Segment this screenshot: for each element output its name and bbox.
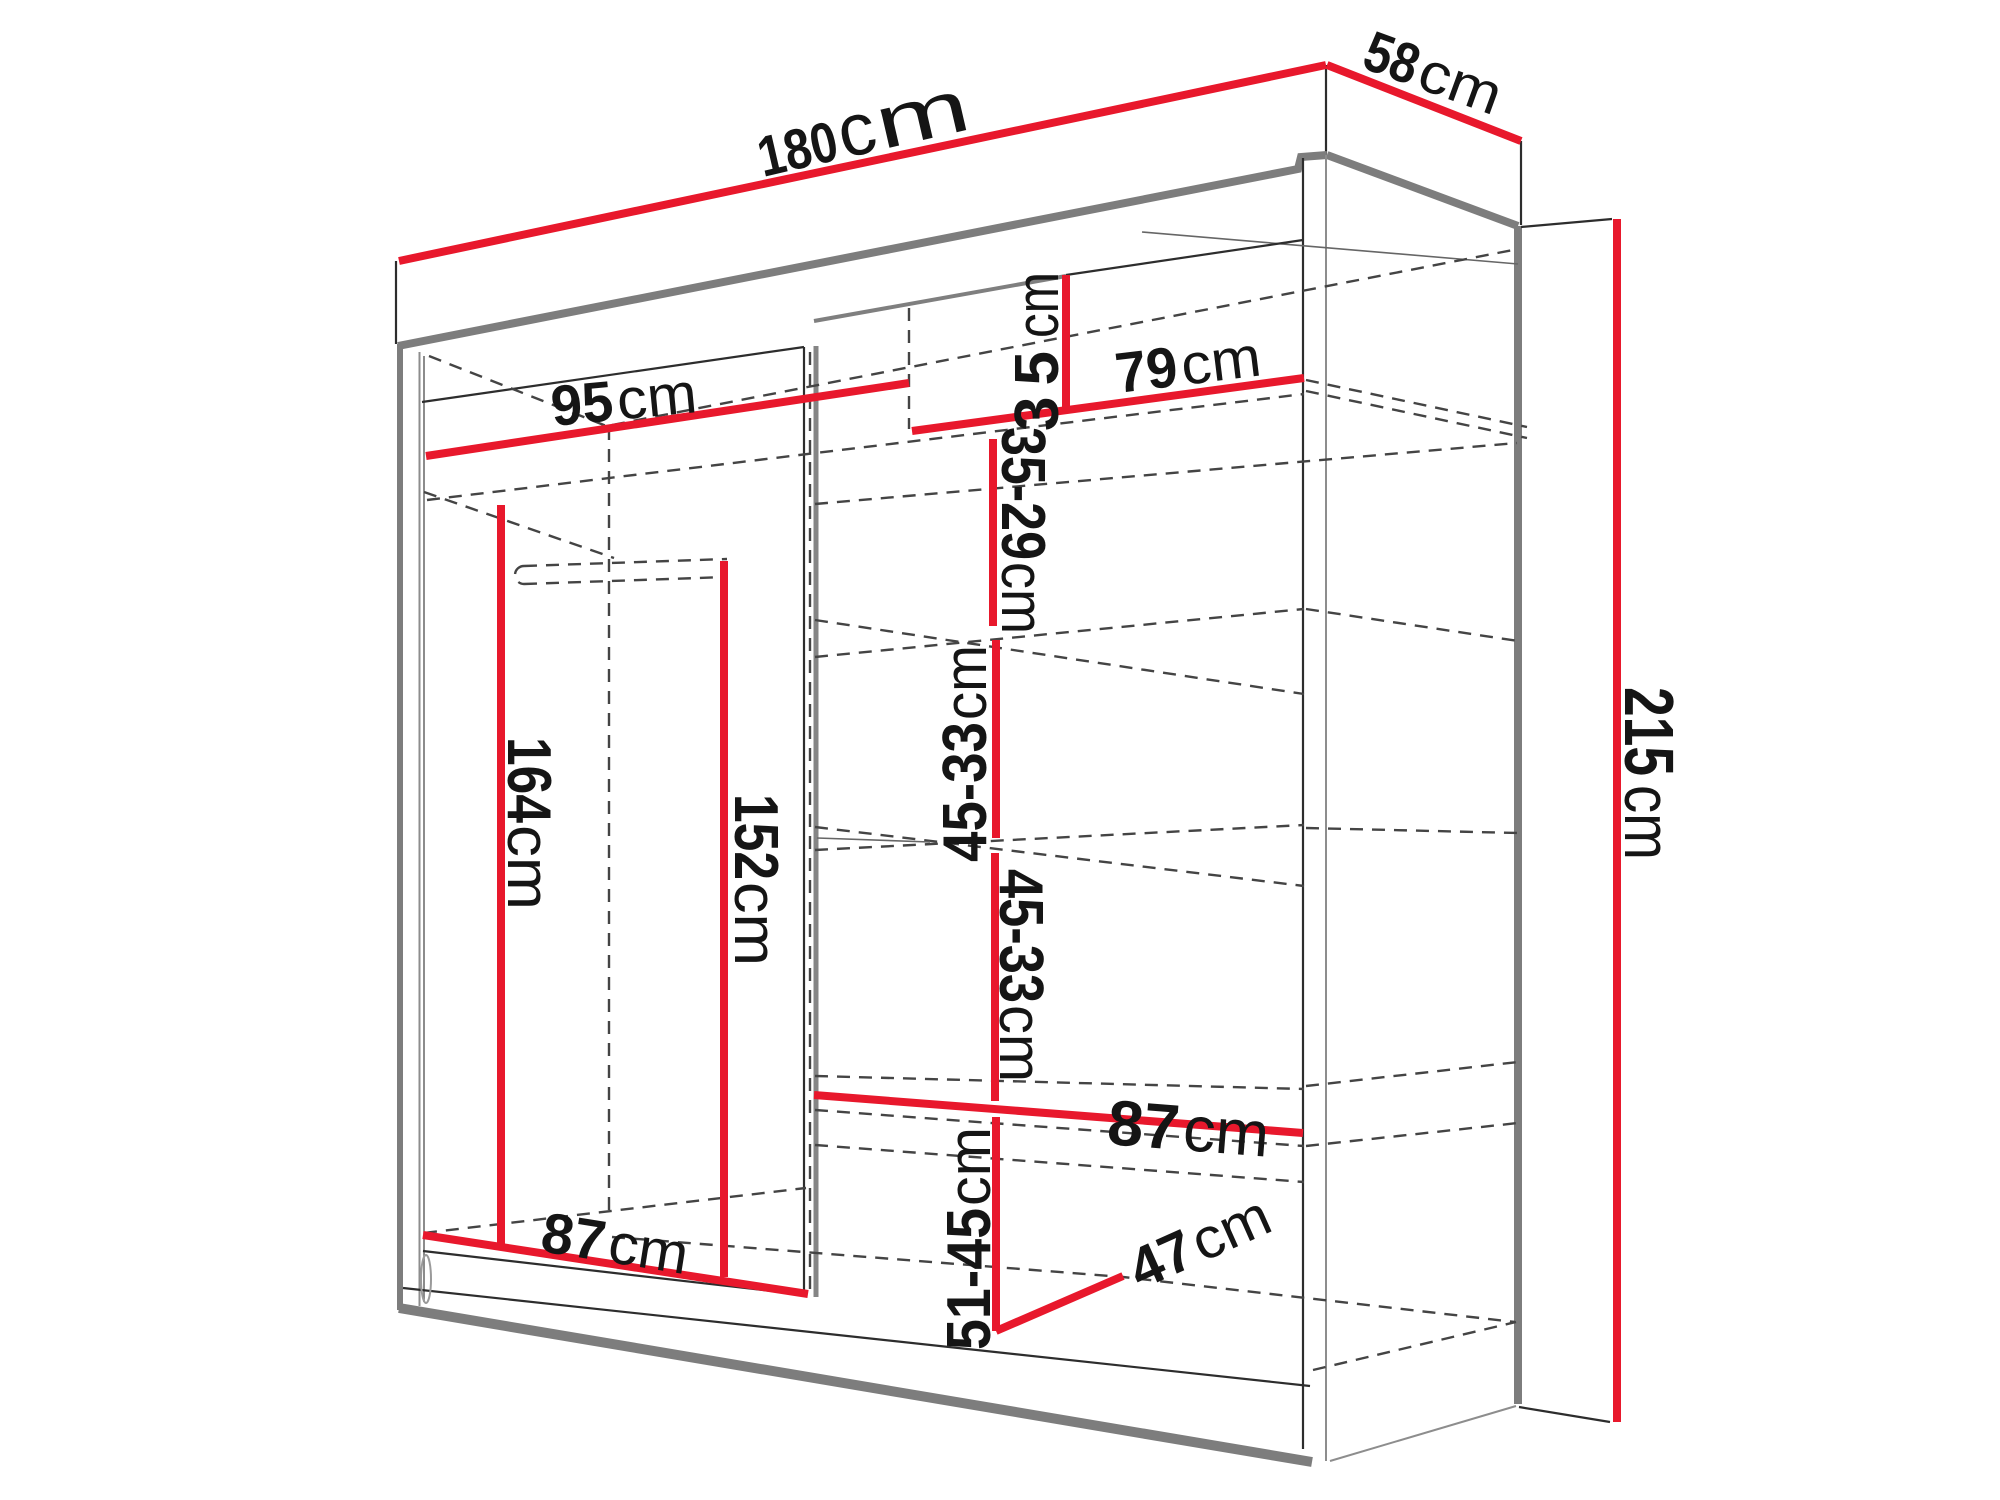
svg-text:45-33cm: 45-33cm [986,869,1055,1082]
svg-text:45-33cm: 45-33cm [931,645,1000,862]
svg-text:47cm: 47cm [1119,1183,1280,1302]
svg-text:51-45cm: 51-45cm [935,1127,1004,1350]
svg-text:215cm: 215cm [1610,687,1688,860]
svg-text:35cm: 35cm [1003,272,1072,431]
svg-text:87cm: 87cm [537,1201,693,1287]
svg-text:35-29cm: 35-29cm [988,427,1057,634]
svg-text:58cm: 58cm [1356,19,1511,128]
svg-text:152cm: 152cm [721,794,790,966]
svg-text:180cm: 180cm [748,63,977,192]
svg-text:79cm: 79cm [1112,325,1265,406]
svg-text:95cm: 95cm [548,361,699,439]
svg-text:87cm: 87cm [1105,1086,1272,1170]
